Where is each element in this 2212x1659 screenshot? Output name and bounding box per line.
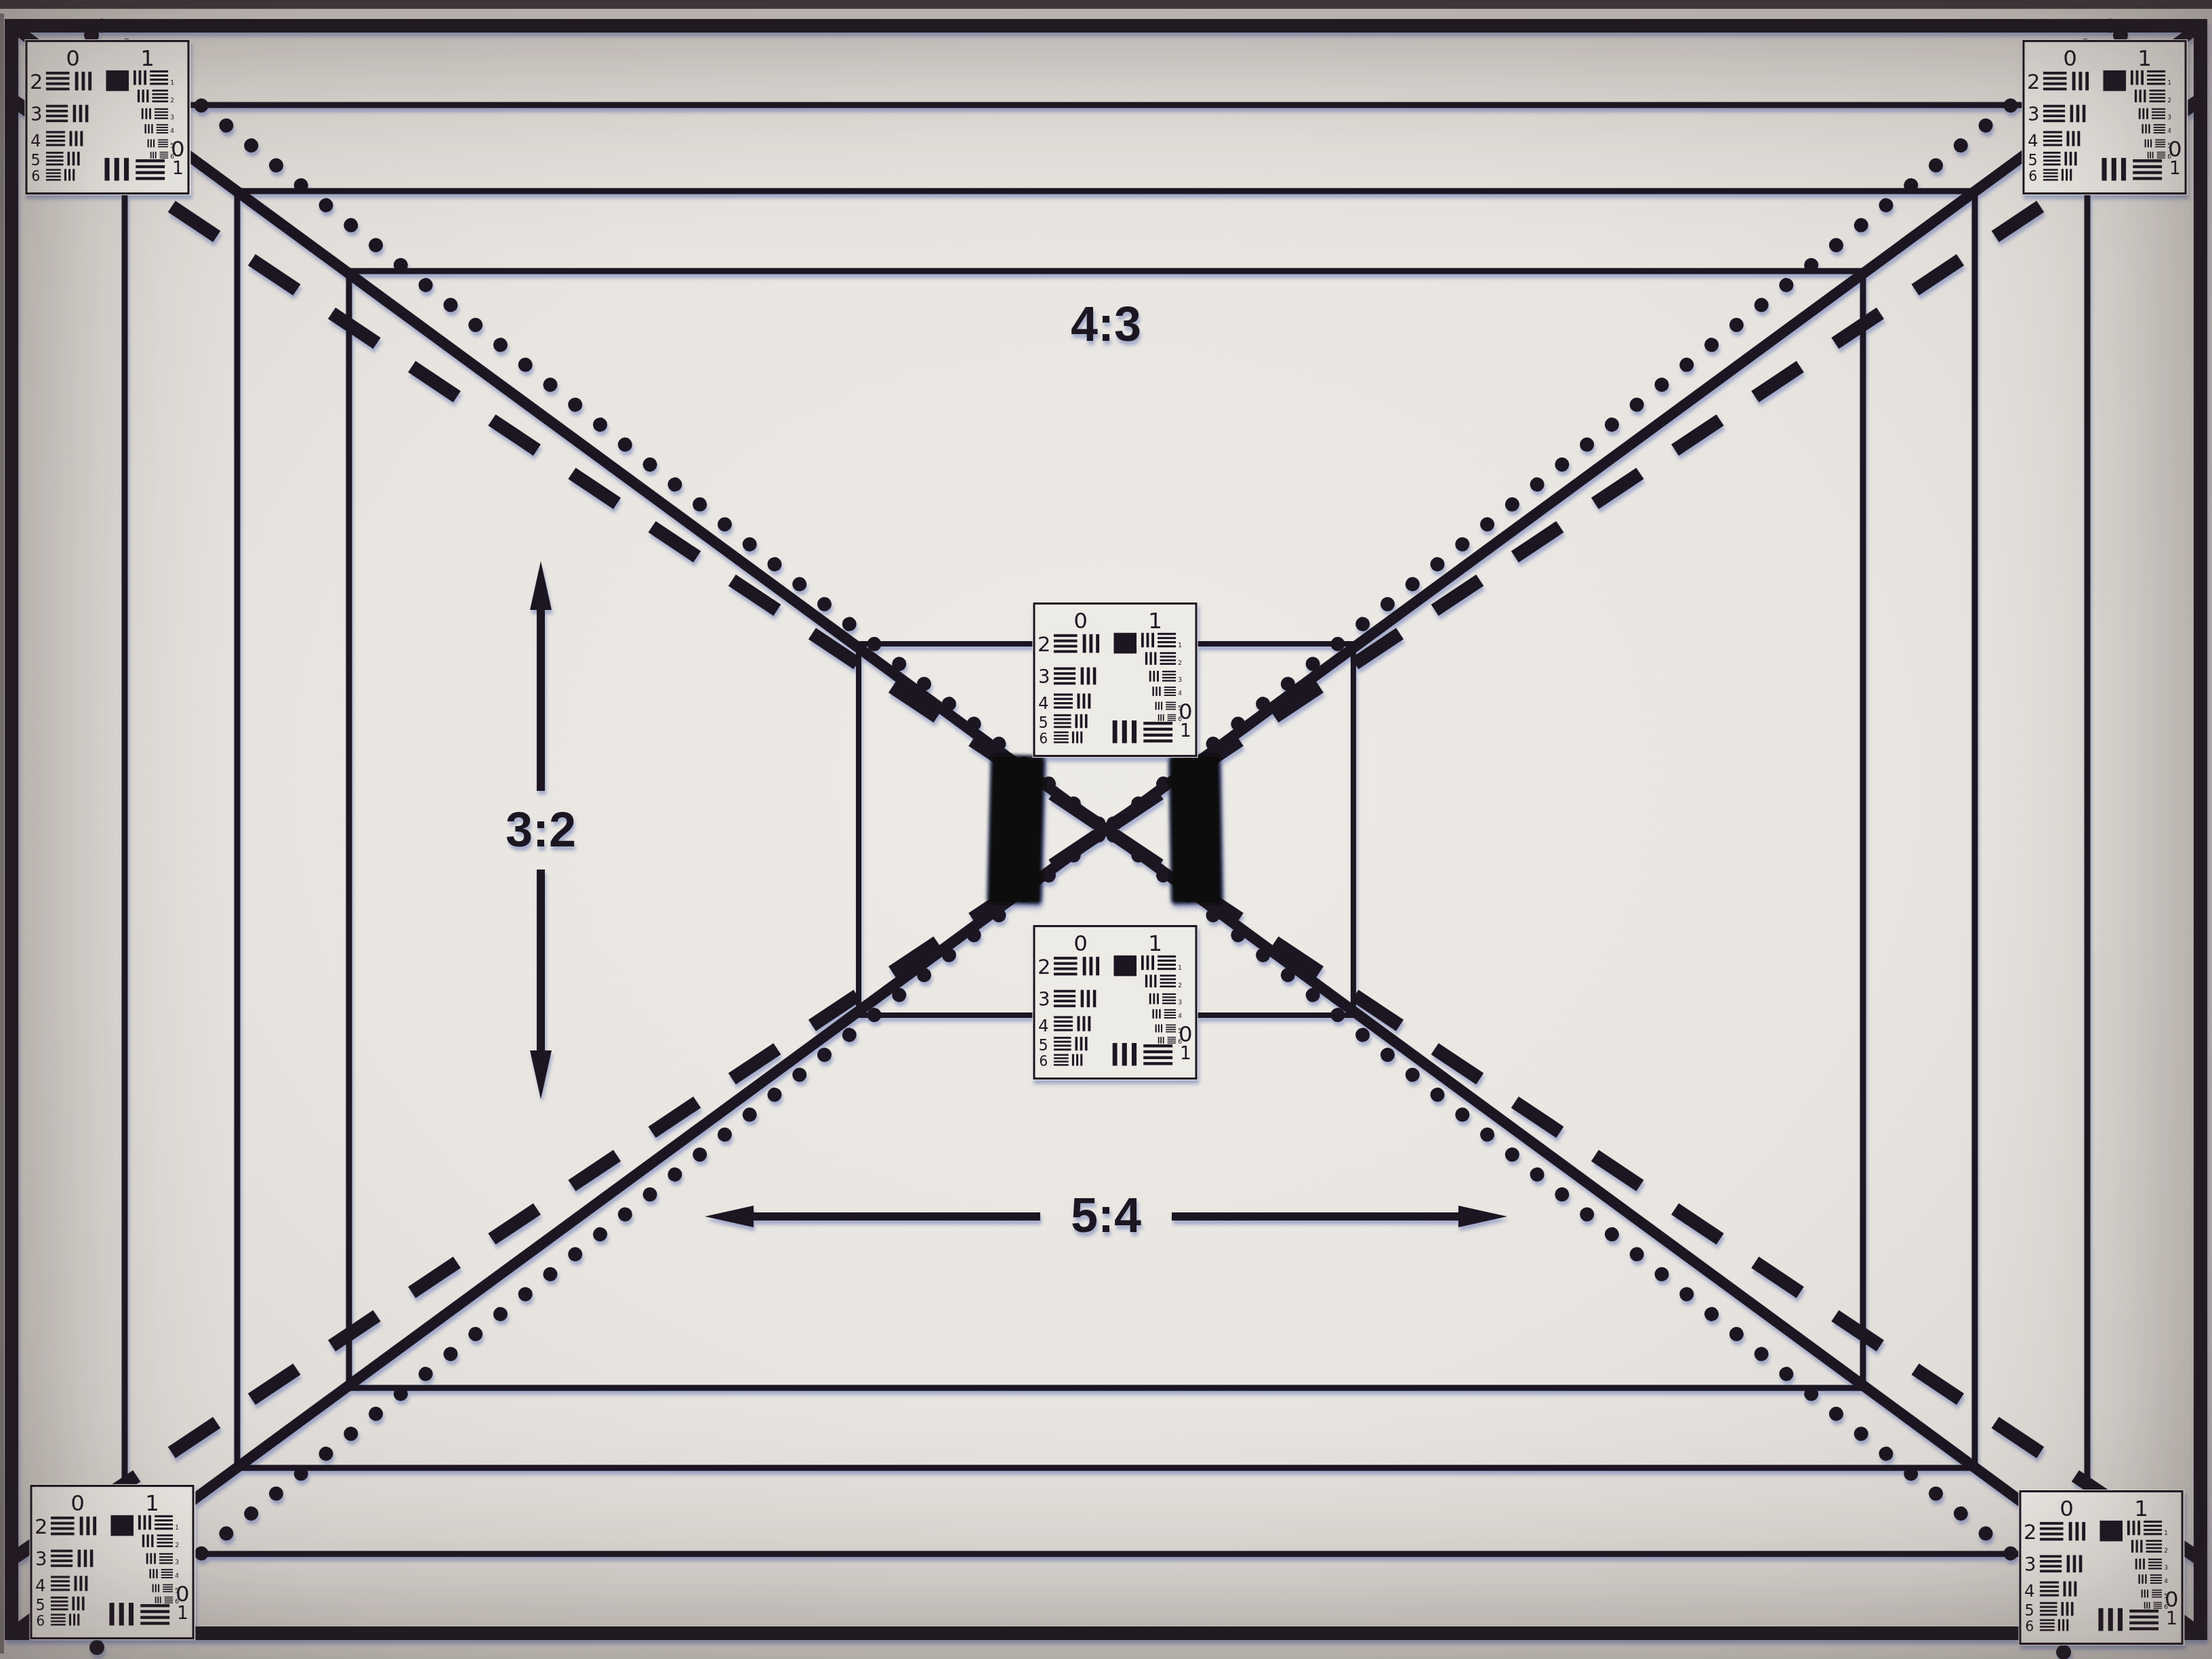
focus-bar-left: [987, 754, 1046, 905]
dotted-diagonal-top-right: [1106, 26, 2110, 829]
aspect-label-5-4: 5:4: [1071, 1188, 1141, 1242]
resolution-target-center-bottom: [1032, 924, 1197, 1080]
aspect-indicator-3-2: 3:2: [506, 561, 576, 1099]
aspect-label-4-3: 4:3: [1071, 297, 1141, 351]
diagonal-lines: [12, 26, 2200, 1633]
arrow-3-2-down-head: [530, 1050, 552, 1099]
fiducial-dot-bottom-left: [89, 1640, 104, 1655]
resolution-target-bottom-right: [2018, 1490, 2184, 1645]
resolution-target-top-left: [24, 39, 190, 195]
resolution-target-center-top: [1032, 602, 1197, 758]
arrow-3-2-up-head: [530, 561, 552, 610]
focus-bar-right: [1168, 754, 1223, 904]
dashed-diagonal-bottom-right: [1106, 829, 2200, 1559]
dotted-diagonal-bottom-left: [102, 829, 1106, 1633]
photo-edge-top: [0, 0, 2212, 9]
dashed-diagonal-bottom-left: [12, 829, 1106, 1559]
aspect-label-3-2: 3:2: [506, 802, 576, 857]
fiducial-dot-bottom-right: [2056, 1645, 2071, 1659]
dashed-diagonal-top-right: [1106, 100, 2200, 829]
resolution-target-top-right: [2022, 39, 2187, 195]
dotted-diagonal-top-left: [102, 26, 1106, 829]
aspect-indicator-5-4: 5:4: [705, 1188, 1507, 1242]
arrow-5-4-left-head: [705, 1206, 754, 1227]
resolution-target-bottom-left: [29, 1484, 194, 1640]
dashed-diagonal-top-left: [12, 100, 1106, 829]
chart-ink: 4:3 3:2 5:4: [12, 26, 2200, 1659]
chart-canvas: 0 1 2 3 4 5: [0, 0, 2212, 1659]
test-chart-photo: 0 1 2 3 4 5: [0, 0, 2212, 1659]
arrow-5-4-right-head: [1458, 1206, 1507, 1227]
photo-edge-left: [0, 14, 4, 1654]
dotted-diagonal-bottom-right: [1106, 829, 2110, 1633]
